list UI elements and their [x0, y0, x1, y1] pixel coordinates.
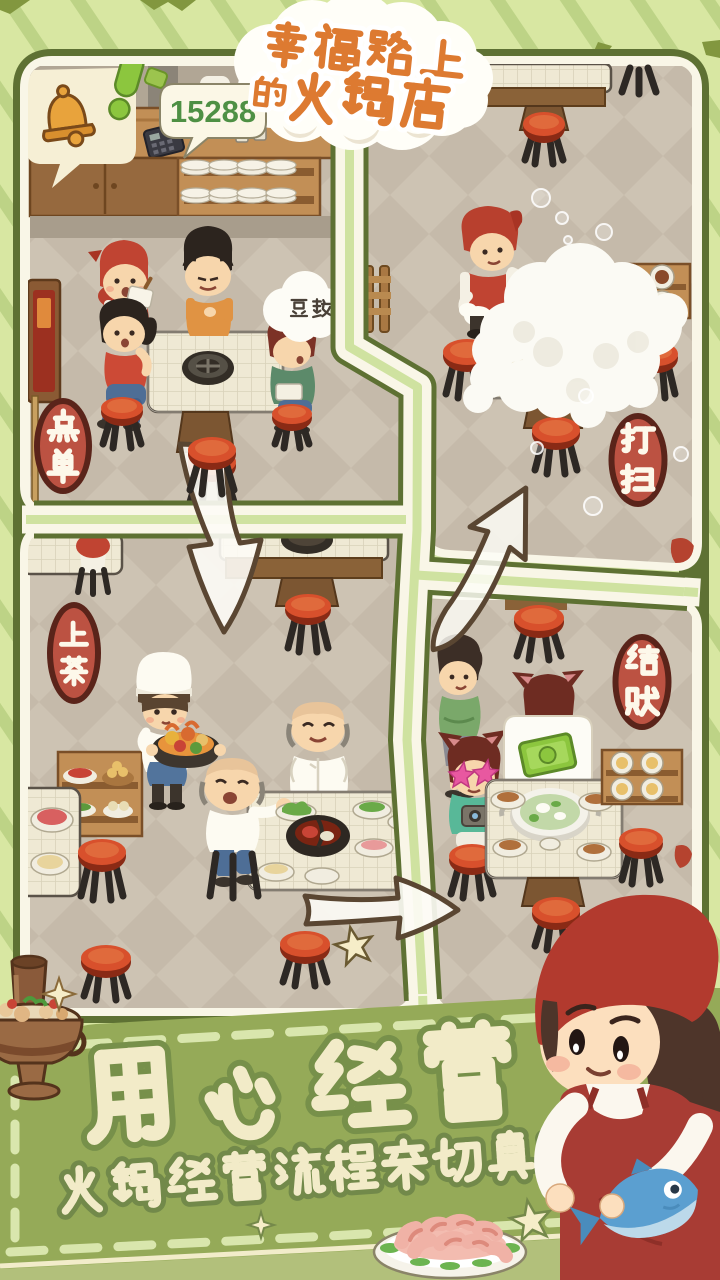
svg-text:15288: 15288: [170, 94, 256, 129]
